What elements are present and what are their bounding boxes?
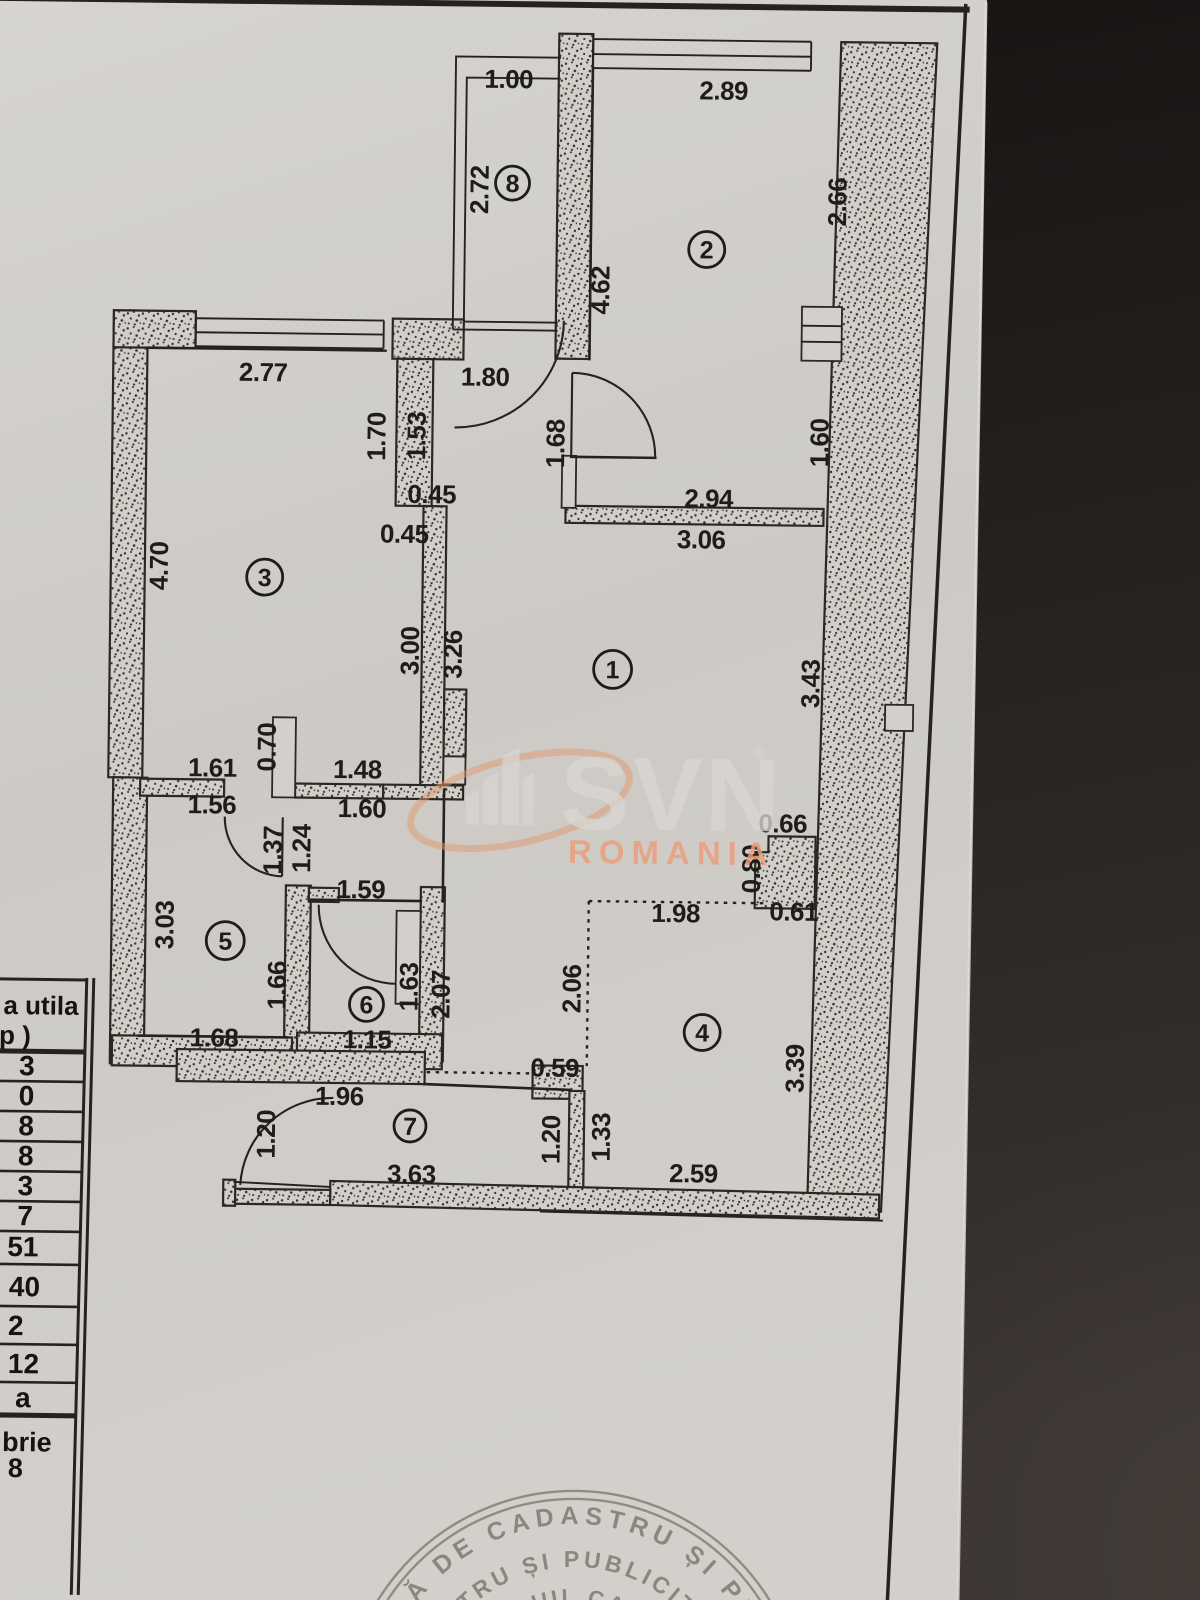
table-cell: 8 <box>18 1140 34 1171</box>
dim-label: 3.06 <box>677 524 726 555</box>
dim-label: 1.33 <box>586 1113 617 1162</box>
table-cell: 2 <box>8 1310 24 1341</box>
table-line <box>0 1382 77 1383</box>
table-line <box>0 1415 76 1416</box>
wall-segment <box>114 310 196 348</box>
table-cell: a <box>15 1382 31 1413</box>
wall-stub <box>568 1091 584 1189</box>
dim-label: 1.15 <box>343 1024 392 1055</box>
table-header: p ) <box>0 1020 31 1050</box>
dim-label: 4.70 <box>144 541 175 590</box>
dim-label: 1.61 <box>188 752 237 783</box>
dim-label: 0.61 <box>769 896 818 927</box>
table-line <box>0 1081 84 1082</box>
dim-label: 1.20 <box>536 1115 567 1164</box>
room-number: 4 <box>695 1019 709 1047</box>
dim-label: 1.63 <box>393 962 424 1011</box>
wall-segment <box>108 310 148 777</box>
dim-label: 0.45 <box>380 519 429 550</box>
wall-segment <box>110 777 147 1063</box>
dim-label: 2.89 <box>699 75 748 106</box>
table-line <box>0 1264 79 1265</box>
wall-threshold <box>233 1189 330 1205</box>
dim-label: 3.43 <box>795 659 826 708</box>
wall-jamb <box>223 1180 235 1206</box>
room-number: 5 <box>218 928 232 956</box>
table-line <box>0 1141 83 1142</box>
table-cell: 0 <box>19 1080 35 1111</box>
table-line <box>0 1111 83 1112</box>
window-opening <box>801 307 842 361</box>
door-leaf <box>571 373 572 457</box>
dim-label: 1.59 <box>336 874 385 905</box>
dim-label: 1.00 <box>484 64 533 95</box>
dim-label: 1.70 <box>361 412 392 461</box>
table-cell: 12 <box>8 1348 40 1379</box>
table-cell: 3 <box>19 1050 35 1081</box>
dim-label: 3.03 <box>149 900 180 949</box>
dim-label: 2.59 <box>669 1158 718 1189</box>
dim-label: 0.45 <box>407 479 456 510</box>
brand-region-text: ROMANIA <box>568 833 775 873</box>
dim-label: 3.39 <box>779 1044 810 1093</box>
dim-label: 1.24 <box>286 823 317 873</box>
dim-label: 1.37 <box>257 826 288 875</box>
bar-chart-icon <box>502 747 520 825</box>
dim-label: 1.68 <box>190 1022 239 1053</box>
dim-label: 2.07 <box>425 970 456 1019</box>
room-number: 7 <box>403 1113 417 1141</box>
dim-label: 1.98 <box>651 898 700 929</box>
dim-label: 1.60 <box>804 418 835 467</box>
table-cell: 8 <box>18 1110 34 1141</box>
room-number: 2 <box>700 236 714 264</box>
table-line <box>0 1171 81 1172</box>
registered-mark: ® <box>752 743 766 763</box>
dim-label: 2.66 <box>822 178 853 227</box>
dim-label: 1.48 <box>333 754 382 785</box>
bar-chart-icon <box>523 772 535 825</box>
dim-label: 3.63 <box>387 1159 436 1190</box>
dim-label: 1.53 <box>401 411 432 460</box>
bar-chart-icon <box>483 772 499 825</box>
dim-label: 1.60 <box>337 793 386 824</box>
dim-label: 2.06 <box>556 964 587 1013</box>
room-line <box>571 457 655 458</box>
dim-label: 1.66 <box>261 961 292 1010</box>
table-header: a utila <box>3 990 79 1021</box>
dim-label: 1.80 <box>461 361 510 392</box>
dim-label: 0.59 <box>530 1052 579 1083</box>
table-cell: 3 <box>17 1170 33 1201</box>
room-number: 1 <box>605 656 619 684</box>
room-number: 6 <box>359 991 373 1019</box>
table-cell: 8 <box>8 1453 23 1483</box>
dim-label: 4.62 <box>585 266 616 315</box>
dim-label: 3.00 <box>395 626 426 675</box>
dim-label: 2.94 <box>684 483 734 514</box>
table-line <box>0 1051 85 1052</box>
table-line <box>0 979 86 980</box>
wall-notch <box>885 705 913 731</box>
balcony-outline <box>453 329 558 330</box>
room-number: 3 <box>258 564 272 592</box>
dim-label: 2.77 <box>239 357 288 388</box>
dim-label: 1.56 <box>187 789 236 820</box>
balcony-outline <box>464 322 558 323</box>
table-line <box>0 1306 79 1307</box>
photographed-floor-plan: 1 2 3 4 5 6 7 8 1.00 2.89 2.77 1.80 0.45… <box>0 0 1200 1600</box>
dim-label: 2.72 <box>464 165 495 214</box>
floor-plan-svg: 1 2 3 4 5 6 7 8 1.00 2.89 2.77 1.80 0.45… <box>0 0 1200 1600</box>
dim-label: 0.70 <box>251 723 282 772</box>
wall-segment <box>444 689 467 756</box>
room-number: 8 <box>505 170 519 198</box>
dim-label: 1.96 <box>315 1081 364 1112</box>
dim-label: 3.26 <box>437 630 468 679</box>
table-line <box>0 1201 81 1202</box>
dim-label: 1.20 <box>251 1110 282 1159</box>
table-cell: 51 <box>7 1231 39 1262</box>
table-cell: 7 <box>17 1200 33 1231</box>
table-line <box>0 1344 78 1345</box>
table-cell: 40 <box>9 1271 41 1302</box>
dim-label: 1.68 <box>540 419 571 468</box>
